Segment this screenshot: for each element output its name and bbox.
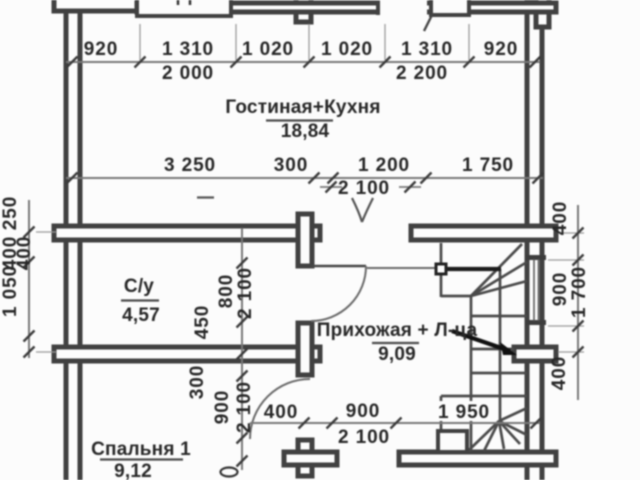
svg-text:400: 400 bbox=[550, 201, 571, 235]
svg-text:Спальня 1: Спальня 1 bbox=[91, 439, 191, 460]
svg-text:900: 900 bbox=[212, 390, 233, 424]
svg-text:1 950: 1 950 bbox=[438, 402, 490, 423]
svg-text:920: 920 bbox=[84, 39, 118, 60]
svg-text:1 020: 1 020 bbox=[242, 39, 294, 60]
svg-text:400: 400 bbox=[549, 356, 570, 390]
svg-text:2 100: 2 100 bbox=[338, 178, 390, 199]
svg-text:300: 300 bbox=[187, 365, 208, 399]
svg-text:Гостиная+Кухня: Гостиная+Кухня bbox=[225, 97, 380, 118]
svg-text:9,12: 9,12 bbox=[114, 461, 152, 480]
svg-text:450: 450 bbox=[192, 305, 213, 339]
svg-text:900: 900 bbox=[346, 401, 380, 422]
svg-text:250: 250 bbox=[0, 196, 21, 230]
svg-text:1 310: 1 310 bbox=[162, 39, 214, 60]
svg-text:2 100: 2 100 bbox=[235, 267, 256, 319]
svg-text:2 100: 2 100 bbox=[234, 381, 255, 433]
svg-text:1 750: 1 750 bbox=[462, 155, 514, 176]
svg-text:1 700: 1 700 bbox=[569, 266, 590, 318]
svg-text:2 100: 2 100 bbox=[338, 427, 390, 448]
svg-text:400: 400 bbox=[264, 402, 298, 423]
svg-text:920: 920 bbox=[484, 39, 518, 60]
svg-text:900: 900 bbox=[550, 272, 571, 306]
svg-text:1 020: 1 020 bbox=[321, 39, 373, 60]
svg-text:Прихожая + Л-ца: Прихожая + Л-ца bbox=[317, 320, 478, 341]
svg-text:С/у: С/у bbox=[124, 276, 154, 297]
svg-text:2 200: 2 200 bbox=[396, 63, 448, 84]
svg-text:800: 800 bbox=[216, 274, 237, 308]
svg-text:2 000: 2 000 bbox=[162, 63, 214, 84]
svg-text:300: 300 bbox=[274, 155, 308, 176]
svg-text:1 050: 1 050 bbox=[0, 265, 21, 317]
svg-text:1 200: 1 200 bbox=[358, 155, 410, 176]
svg-text:4,57: 4,57 bbox=[122, 305, 160, 326]
svg-text:18,84: 18,84 bbox=[281, 121, 330, 142]
svg-text:3 250: 3 250 bbox=[164, 155, 216, 176]
svg-text:1 310: 1 310 bbox=[401, 39, 453, 60]
svg-text:9,09: 9,09 bbox=[378, 344, 416, 365]
